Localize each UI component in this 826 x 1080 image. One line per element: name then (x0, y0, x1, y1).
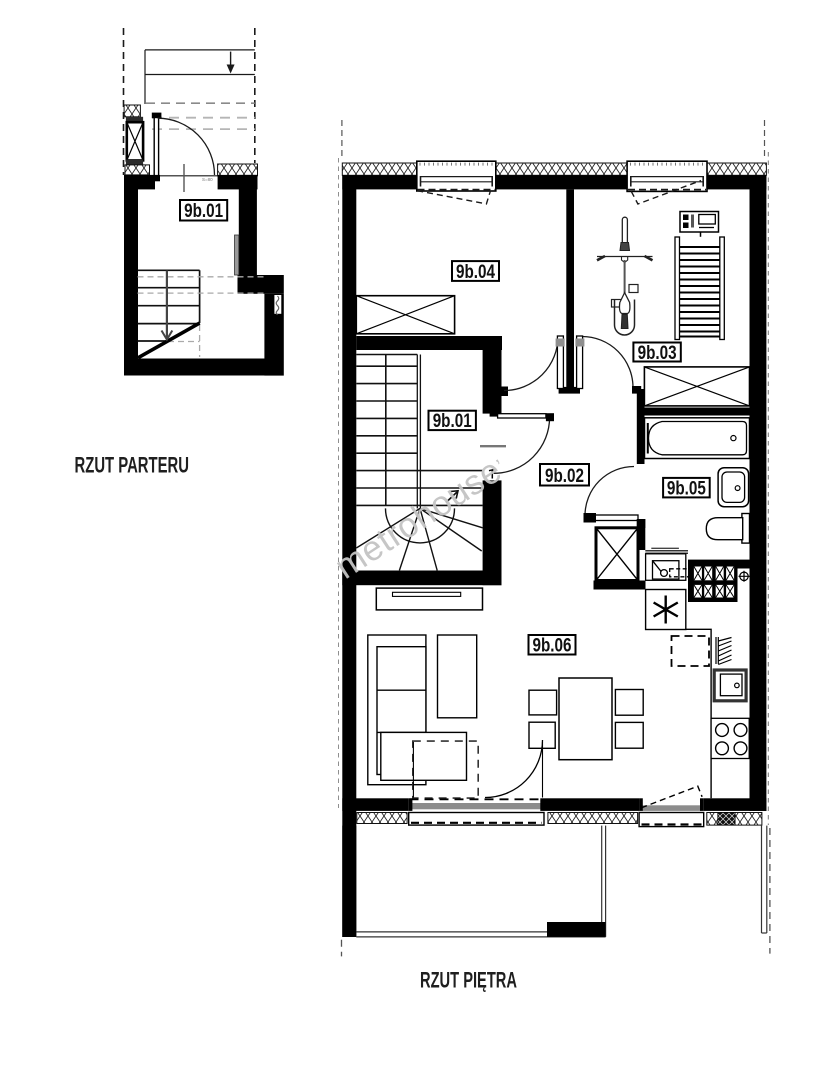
svg-text:9b.05: 9b.05 (667, 478, 706, 500)
svg-text:9b.04: 9b.04 (456, 261, 495, 283)
svg-text:9b.01: 9b.01 (433, 410, 472, 432)
svg-text:RZUT PARTERU: RZUT PARTERU (75, 452, 190, 477)
svg-text:9b.06: 9b.06 (533, 635, 572, 657)
svg-text:9b.01: 9b.01 (184, 200, 223, 222)
svg-text:9b.03: 9b.03 (638, 342, 677, 364)
svg-text:RZUT PIĘTRA: RZUT PIĘTRA (420, 968, 517, 993)
svg-text:S=80: S=80 (202, 177, 213, 182)
svg-text:9b.02: 9b.02 (545, 465, 584, 487)
